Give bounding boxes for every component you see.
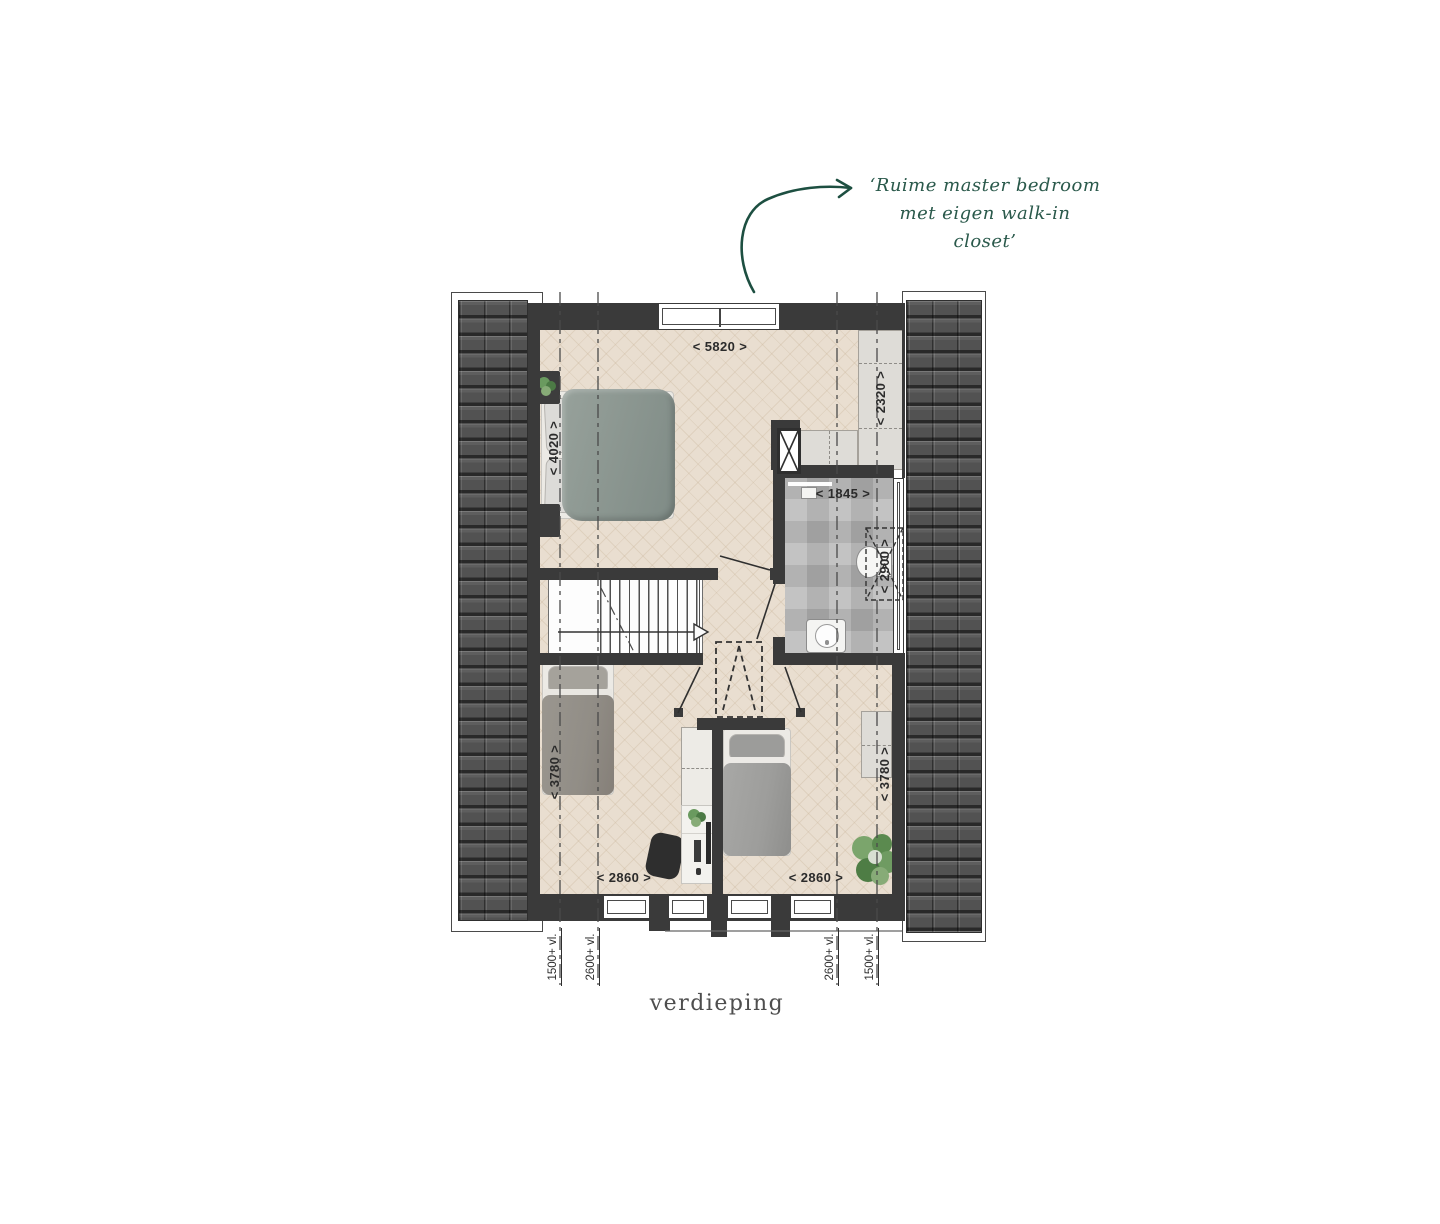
dim-bedroom-right-width: < 2860 > <box>776 870 856 886</box>
dim-bedroom-right-depth: < 3780 > <box>877 734 893 814</box>
level-marker-right-inner: 2600+ vl. <box>823 928 839 986</box>
dim-master-width: < 5820 > <box>680 339 760 355</box>
annotation-line-1: ‘Ruime master bedroom <box>840 172 1130 200</box>
door-leaf-master-bedroom <box>720 556 770 570</box>
dim-bedroom-left-width: < 2860 > <box>584 870 664 886</box>
dim-bathroom-depth: < 2900 > <box>877 526 893 606</box>
level-marker-left-inner: 2600+ vl. <box>584 928 600 986</box>
annotation-line-2: met eigen walk-in <box>840 200 1130 228</box>
dim-closet-depth: < 2320 > <box>873 358 889 438</box>
line-overlay <box>0 0 1440 1224</box>
stair-direction-arrowhead <box>694 624 708 640</box>
level-marker-left-outer: 1500+ vl. <box>546 928 562 986</box>
dim-bathroom-width: < 1845 > <box>803 486 883 502</box>
attic-ladder-leg <box>722 646 739 714</box>
dim-master-depth: < 4020 > <box>546 408 562 488</box>
attic-ladder-outline <box>716 642 762 717</box>
attic-ladder-leg <box>739 646 756 714</box>
annotation-line-3: closet’ <box>840 228 1130 256</box>
door-leaf-right-bedroom <box>785 667 801 712</box>
page-title: verdieping <box>567 991 867 1016</box>
annotation-text: ‘Ruime master bedroom met eigen walk-in … <box>840 172 1130 256</box>
door-leaf-bathroom <box>757 584 775 639</box>
floorplan-canvas: < 5820 > < 4020 > < 2320 > < 1845 > < 29… <box>0 0 1440 1224</box>
level-marker-right-outer: 1500+ vl. <box>863 928 879 986</box>
dim-bedroom-left-depth: < 3780 > <box>547 732 563 812</box>
door-leaf-left-bedroom <box>678 667 700 713</box>
annotation-arrow <box>742 187 851 292</box>
stair-cut-line <box>601 588 634 652</box>
